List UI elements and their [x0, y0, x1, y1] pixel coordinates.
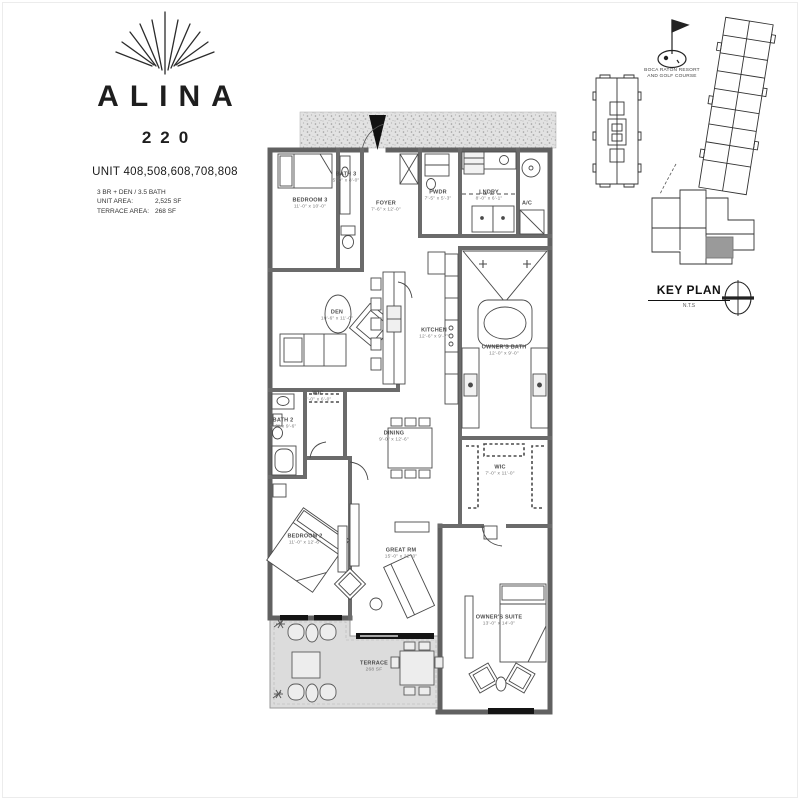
spec-terrace-area-label: TERRACE AREA:: [97, 207, 155, 216]
site-path-line: [660, 164, 676, 194]
room-label-dining: DINING9'-0" x 12'-6": [379, 431, 409, 444]
room-name-bath3: BATH 3: [333, 172, 360, 179]
room-label-bedroom2: BEDROOM 211'-0" x 12'-6": [287, 534, 322, 547]
room-name-den: DEN: [321, 310, 353, 317]
room-dims-den: 10'-6" x 11'-0": [321, 316, 353, 322]
room-label-bath3: BATH 35'-0" x 8'-0": [333, 172, 360, 185]
spec-config-label: 3 BR + DEN / 3.5 BATH: [97, 188, 166, 197]
room-dims-kitchen: 12'-6" x 9'-7": [419, 334, 449, 340]
room-label-ac: A/C: [522, 201, 532, 208]
room-name-bedroom2: BEDROOM 2: [287, 534, 322, 541]
room-label-owners-wic: WIC7'-0" x 11'-0": [485, 465, 514, 478]
key-plan-scale-note: N.T.S: [648, 303, 730, 309]
room-dims-terrace: 268 SF: [360, 667, 388, 673]
spec-unit-area-label: UNIT AREA:: [97, 197, 155, 206]
room-dims-bedroom2: 11'-0" x 12'-6": [287, 540, 322, 546]
building-slab-icon: [695, 17, 777, 196]
room-label-pwdr: PWDR7'-5" x 5'-3": [425, 190, 452, 203]
room-dims-great-room: 15'-0" x 22'-0": [385, 554, 418, 560]
spec-terrace-area: TERRACE AREA: 268 SF: [97, 207, 247, 216]
highlighted-unit: [706, 237, 733, 258]
key-plan-title: KEY PLAN: [648, 283, 730, 301]
room-label-great-room: GREAT RM15'-0" x 22'-0": [385, 548, 418, 561]
room-label-owners-suite: OWNER'S SUITE13'-0" x 14'-0": [476, 615, 522, 628]
room-name-kitchen: KITCHEN: [419, 328, 449, 335]
spec-unit-area-value: 2,525 SF: [155, 197, 181, 206]
room-dims-bath3: 5'-0" x 8'-0": [333, 178, 360, 184]
room-name-pwdr: PWDR: [425, 190, 452, 197]
room-name-foyer: FOYER: [371, 201, 401, 208]
room-label-kitchen: KITCHEN12'-6" x 9'-7": [419, 328, 449, 341]
corridor-band: [300, 112, 556, 148]
room-name-owners-bath: OWNER'S BATH: [482, 345, 527, 352]
room-label-wic2: WIC7'-0" x 6'-0": [305, 391, 332, 404]
spec-terrace-area-value: 268 SF: [155, 207, 176, 216]
room-label-foyer: FOYER7'-6" x 12'-0": [371, 201, 401, 214]
key-plan-caption: KEY PLAN N.T.S: [648, 283, 730, 309]
room-dims-bedroom3: 11'-0" x 10'-0": [292, 204, 327, 210]
room-name-ac: A/C: [522, 201, 532, 208]
room-dims-bath2: 5'-0" x 9'-6": [270, 424, 297, 430]
brand-number: 220: [55, 128, 275, 148]
room-name-wic2: WIC: [305, 391, 332, 398]
room-dims-foyer: 7'-6" x 12'-0": [371, 207, 401, 213]
floor-plan-page: ALINA 220 UNIT 408,508,608,708,808 3 BR …: [0, 0, 800, 800]
spec-unit-area: UNIT AREA: 2,525 SF: [97, 197, 247, 206]
room-label-terrace: TERRACE268 SF: [360, 661, 388, 674]
golf-flag-icon: [658, 20, 688, 68]
brand-title: ALINA: [55, 80, 275, 114]
room-name-bath2: BATH 2: [270, 418, 297, 425]
room-name-owners-suite: OWNER'S SUITE: [476, 615, 522, 622]
room-name-great-room: GREAT RM: [385, 548, 418, 555]
unit-numbers: UNIT 408,508,608,708,808: [55, 166, 275, 178]
room-label-laundry: LNDRY8'-0" x 6'-1": [476, 190, 503, 203]
room-label-den: DEN10'-6" x 11'-0": [321, 310, 353, 323]
tower-footprint-icon: [593, 75, 641, 187]
room-name-terrace: TERRACE: [360, 661, 388, 668]
room-name-laundry: LNDRY: [476, 190, 503, 197]
fan-rays-logo-icon: [90, 10, 240, 76]
branding-block: ALINA 220 UNIT 408,508,608,708,808 3 BR …: [55, 10, 275, 216]
landmark-caption: BOCA RATON RESORT AND GOLF COURSE: [612, 68, 732, 81]
room-dims-owners-bath: 12'-0" x 9'-0": [482, 351, 527, 357]
room-dims-wic2: 7'-0" x 6'-0": [305, 397, 332, 403]
room-name-bedroom3: BEDROOM 3: [292, 198, 327, 205]
room-dims-owners-suite: 13'-0" x 14'-0": [476, 621, 522, 627]
room-dims-dining: 9'-0" x 12'-6": [379, 437, 409, 443]
building-wing-icon: [652, 190, 754, 264]
spec-config: 3 BR + DEN / 3.5 BATH: [97, 188, 247, 197]
room-dims-laundry: 8'-0" x 6'-1": [476, 196, 503, 202]
room-label-bedroom3: BEDROOM 311'-0" x 10'-0": [292, 198, 327, 211]
room-name-dining: DINING: [379, 431, 409, 438]
room-dims-owners-wic: 7'-0" x 11'-0": [485, 471, 514, 477]
landmark-line2: AND GOLF COURSE: [612, 74, 732, 80]
furniture: [267, 152, 548, 693]
room-dims-pwdr: 7'-5" x 5'-3": [425, 196, 452, 202]
room-name-owners-wic: WIC: [485, 465, 514, 472]
room-label-bath2: BATH 25'-0" x 9'-6": [270, 418, 297, 431]
unit-specs: 3 BR + DEN / 3.5 BATH UNIT AREA: 2,525 S…: [97, 188, 247, 216]
key-plan-drawing: [580, 6, 800, 316]
room-label-owners-bath: OWNER'S BATH12'-0" x 9'-0": [482, 345, 527, 358]
